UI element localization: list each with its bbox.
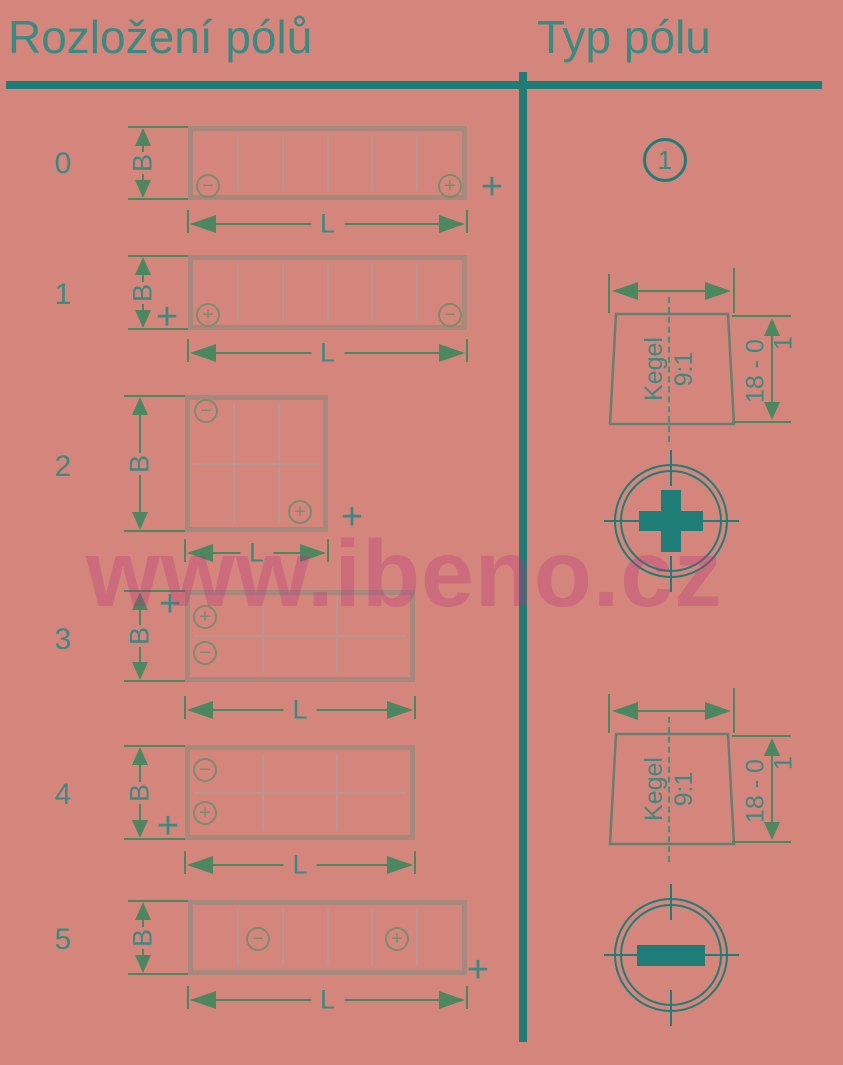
pole-type-badge: 1: [643, 138, 687, 182]
page-title-left: Rozložení pólů: [8, 10, 312, 64]
cell-divider: [194, 792, 406, 794]
end-tick: [187, 210, 189, 233]
polarity-plus-sign: +: [481, 168, 503, 206]
row-label: 4: [55, 778, 72, 812]
cone-taper-line2: 9:1: [669, 337, 699, 401]
cone-taper-line1: Kegel: [639, 757, 669, 821]
header-rule: [6, 81, 822, 89]
end-tick: [466, 986, 468, 1009]
row-label: 1: [55, 278, 72, 312]
arrow-down-icon: [764, 822, 780, 840]
battery-pole-diagram: Rozložení pólů Typ pólu 0B−++L1B+−+L2B−+…: [0, 0, 843, 1065]
cell-divider: [194, 463, 319, 465]
cone-taper-line2: 9:1: [669, 757, 699, 821]
l-dim-label: L: [311, 340, 344, 367]
terminal-minus-icon: −: [193, 641, 217, 665]
terminal-plus-icon: +: [438, 174, 462, 198]
height-label: 18 - 0: [744, 339, 769, 403]
watermark-text: www.ibeno.cz: [86, 520, 723, 629]
cell-divider: [282, 264, 284, 321]
arrow-left-icon: [612, 702, 638, 720]
arrow-left-icon: [187, 701, 213, 719]
arrow-left-icon: [187, 856, 213, 874]
arrow-up-icon: [135, 257, 151, 275]
polarity-plus-sign: +: [156, 298, 178, 336]
end-tick: [184, 851, 186, 874]
end-tick: [414, 851, 416, 874]
arrow-left-icon: [190, 215, 216, 233]
cell-divider: [416, 135, 418, 191]
arrow-right-icon: [439, 991, 465, 1009]
cone-taper-line1: Kegel: [639, 337, 669, 401]
b-dim-label: B: [127, 152, 160, 174]
extension-line: [608, 274, 610, 313]
extension-tick: [128, 198, 188, 200]
arrow-up-icon: [132, 397, 148, 415]
b-dim-label: B: [127, 926, 160, 948]
end-tick: [187, 339, 189, 362]
arrow-left-icon: [190, 344, 216, 362]
cell-divider: [237, 264, 239, 321]
cell-divider: [327, 135, 329, 191]
l-dim-label: L: [283, 697, 316, 724]
end-tick: [414, 696, 416, 719]
terminal-minus-icon: −: [196, 174, 220, 198]
arrow-up-icon: [135, 128, 151, 146]
cell-divider: [237, 909, 239, 966]
extension-tick: [128, 973, 188, 975]
cell-divider: [371, 135, 373, 191]
end-tick: [466, 339, 468, 362]
arrow-down-icon: [135, 180, 151, 198]
row-label: 5: [55, 923, 72, 957]
end-tick: [184, 696, 186, 719]
extension-tick: [732, 421, 791, 423]
cell-divider: [282, 135, 284, 191]
height-tolerance: 1: [772, 756, 797, 770]
crosshair-tick: [670, 990, 672, 1026]
terminal-plus-icon: +: [385, 927, 409, 951]
b-dim-label: B: [127, 281, 160, 303]
arrow-right-icon: [439, 215, 465, 233]
terminal-minus-icon: −: [194, 399, 218, 423]
battery-box: [188, 255, 467, 330]
arrow-left-icon: [612, 282, 638, 300]
cell-divider: [327, 264, 329, 321]
arrow-right-icon: [387, 856, 413, 874]
extension-tick: [124, 680, 185, 682]
extension-tick: [732, 735, 791, 737]
b-dim-label: B: [124, 452, 157, 474]
extension-line: [733, 688, 735, 733]
polarity-plus-sign: +: [157, 807, 179, 845]
row-label: 3: [55, 623, 72, 657]
extension-tick: [732, 315, 791, 317]
arrow-down-icon: [764, 402, 780, 420]
terminal-plus-icon: +: [193, 801, 217, 825]
height-label: 18 - 0: [744, 759, 769, 823]
extension-line: [733, 268, 735, 313]
l-dim-label: L: [283, 852, 316, 879]
terminal-plus-icon: +: [196, 303, 220, 327]
l-dim-label: L: [311, 987, 344, 1014]
l-dim-label: L: [311, 211, 344, 238]
arrow-right-icon: [387, 701, 413, 719]
cell-divider: [237, 135, 239, 191]
cell-divider: [194, 635, 406, 637]
extension-line: [608, 694, 610, 733]
crosshair-tick: [701, 954, 739, 956]
battery-box: [185, 745, 415, 840]
cone-taper-label: Kegel9:1: [639, 337, 699, 401]
minus-icon: [637, 945, 705, 966]
battery-box: [188, 900, 467, 975]
battery-box: [188, 126, 467, 200]
arrow-down-icon: [132, 820, 148, 838]
arrow-right-icon: [705, 282, 731, 300]
end-tick: [466, 210, 468, 233]
arrow-right-icon: [439, 344, 465, 362]
row-label: 0: [55, 147, 72, 181]
height-tolerance: 1: [772, 336, 797, 350]
extension-tick: [732, 841, 791, 843]
crosshair-tick: [670, 450, 672, 486]
terminal-minus-icon: −: [246, 927, 270, 951]
pole-type-badge-number: 1: [658, 145, 672, 176]
arrow-down-icon: [135, 955, 151, 973]
arrow-down-icon: [135, 310, 151, 328]
row-label: 2: [55, 450, 72, 484]
arrow-up-icon: [764, 738, 780, 756]
crosshair-tick: [670, 884, 672, 920]
arrow-up-icon: [764, 318, 780, 336]
cell-divider: [371, 264, 373, 321]
b-dim-label: B: [124, 781, 157, 803]
arrow-down-icon: [132, 662, 148, 680]
cell-divider: [416, 909, 418, 966]
arrow-right-icon: [705, 702, 731, 720]
terminal-minus-icon: −: [438, 303, 462, 327]
arrow-up-icon: [132, 747, 148, 765]
page-title-right: Typ pólu: [537, 10, 711, 64]
arrow-left-icon: [190, 991, 216, 1009]
cell-divider: [416, 264, 418, 321]
cell-divider: [282, 909, 284, 966]
polarity-plus-sign: +: [467, 951, 489, 989]
cone-taper-label: Kegel9:1: [639, 757, 699, 821]
cell-divider: [327, 909, 329, 966]
cell-divider: [371, 909, 373, 966]
end-tick: [187, 986, 189, 1009]
terminal-minus-icon: −: [193, 758, 217, 782]
arrow-up-icon: [135, 902, 151, 920]
